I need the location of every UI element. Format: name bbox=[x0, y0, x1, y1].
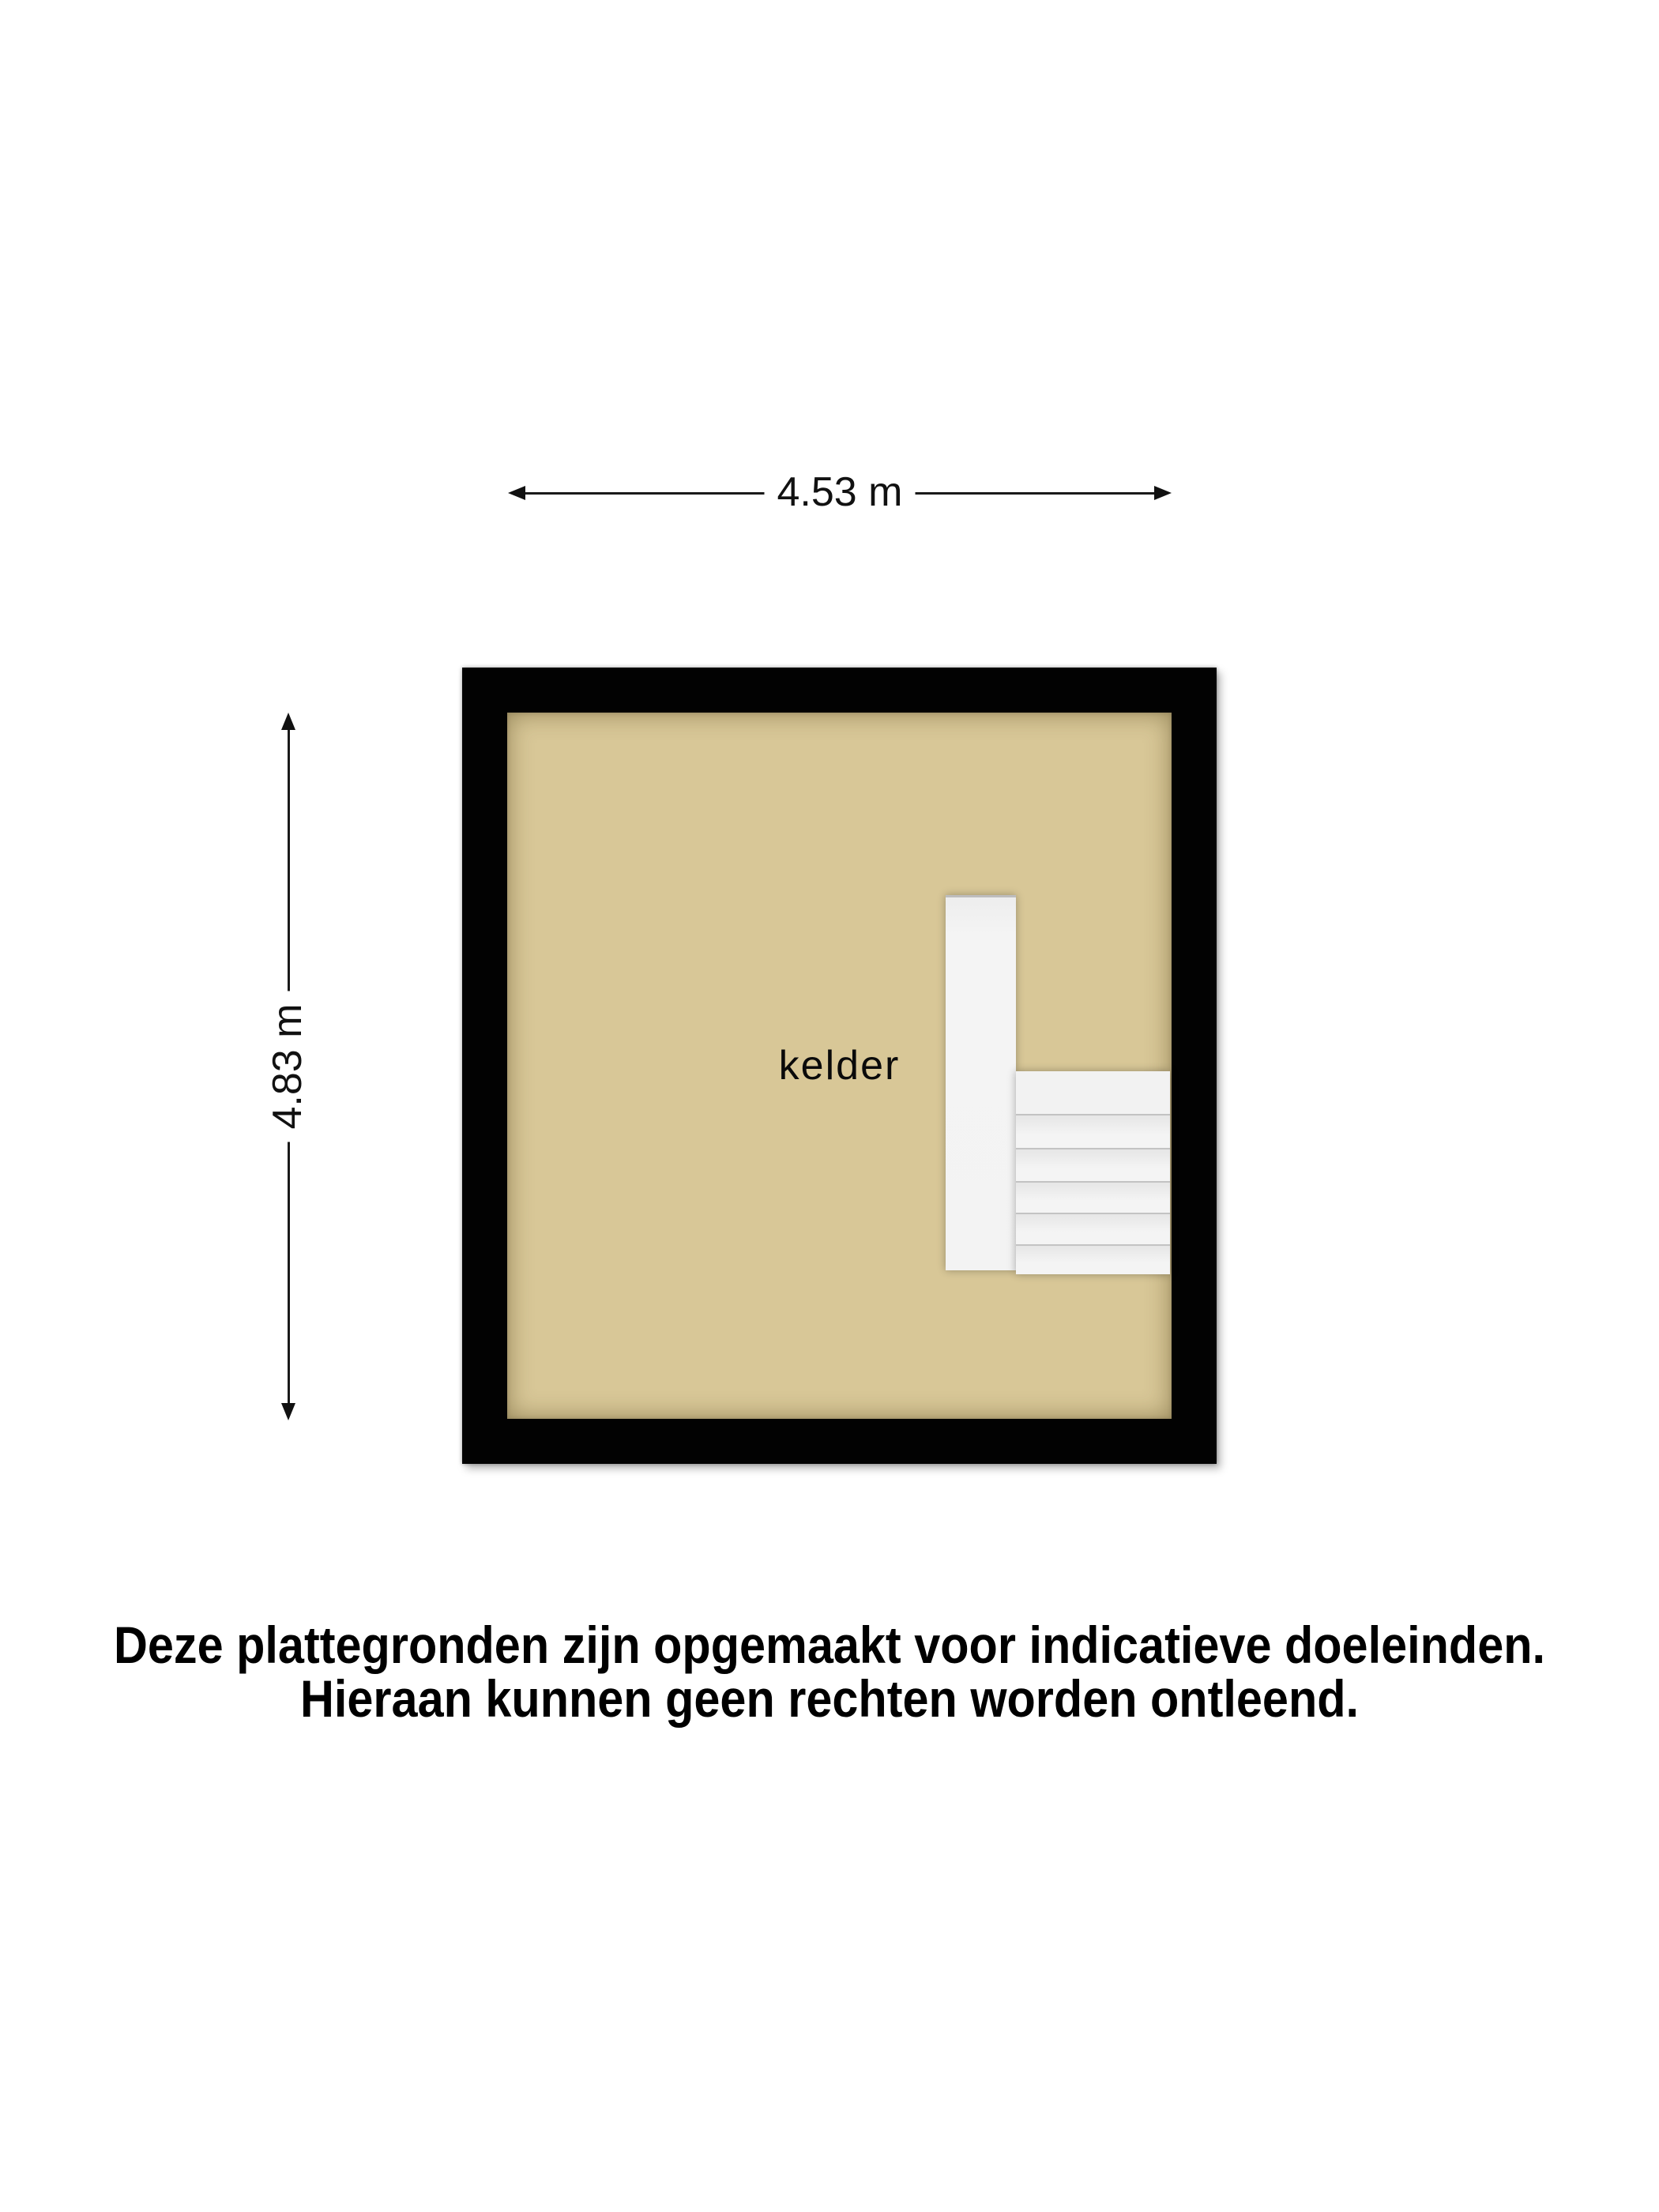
arrowhead-right-icon bbox=[1154, 486, 1172, 500]
stair-tread bbox=[1016, 1148, 1170, 1181]
arrowhead-left-icon bbox=[508, 486, 525, 500]
basement-floor: kelder bbox=[507, 713, 1172, 1419]
disclaimer: Deze plattegronden zijn opgemaakt voor i… bbox=[0, 1618, 1659, 1725]
disclaimer-line-2: Hieraan kunnen geen rechten worden ontle… bbox=[83, 1672, 1576, 1725]
arrowhead-down-icon bbox=[281, 1403, 295, 1420]
floorplan-page: 4.53 m 4.83 m kelder Deze plattegronden … bbox=[0, 0, 1659, 2212]
stair-tread bbox=[1016, 1071, 1170, 1114]
floor-plan-walls: kelder bbox=[462, 668, 1217, 1464]
arrowhead-up-icon bbox=[281, 713, 295, 730]
room-label: kelder bbox=[779, 1045, 901, 1086]
width-dimension-label: 4.53 m bbox=[765, 469, 916, 517]
disclaimer-line-1: Deze plattegronden zijn opgemaakt voor i… bbox=[83, 1618, 1576, 1672]
height-dimension-label: 4.83 m bbox=[265, 991, 312, 1142]
stair-landing bbox=[946, 895, 1016, 1270]
staircase bbox=[1016, 1071, 1170, 1274]
stair-tread bbox=[1016, 1181, 1170, 1213]
stair-tread bbox=[1016, 1244, 1170, 1274]
stair-tread bbox=[1016, 1114, 1170, 1148]
stair-tread bbox=[1016, 1213, 1170, 1244]
